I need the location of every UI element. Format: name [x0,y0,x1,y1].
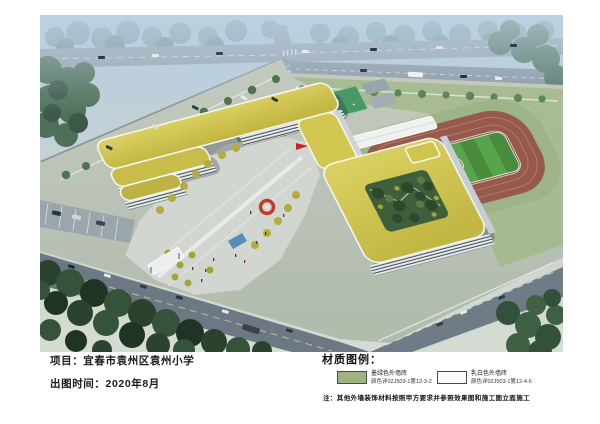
legend-material-spec: 颜色详02J503-1第12-3-2 [371,378,432,386]
bus [408,72,423,78]
white-brick-swatch [437,371,467,384]
legend-item-white-brick: 乳白色外墙砖 颜色详02J503-1第12-4-6 [437,371,532,386]
material-legend-title: 材质图例： [322,351,382,367]
legend-note: 注：其他外墙装饰材料按照甲方要求并参照效果图和施工图立面施工 [323,392,530,402]
drawing-sheet: 项目：宜春市袁州区袁州小学 出图时间：2020年8月 材质图例： 墨绿色外墙砖 … [0,0,600,424]
legend-material-name: 墨绿色外墙砖 [371,371,432,378]
aerial-rendering [40,15,563,352]
legend-material-name: 乳白色外墙砖 [471,371,532,378]
legend-item-dark-green-brick: 墨绿色外墙砖 颜色详02J503-1第12-3-2 [337,371,432,386]
legend-material-spec: 颜色详02J503-1第12-4-6 [471,378,532,386]
project-title: 项目：宜春市袁州区袁州小学 [50,353,194,368]
issue-date: 出图时间：2020年8月 [50,376,160,391]
green-brick-swatch [337,371,367,384]
